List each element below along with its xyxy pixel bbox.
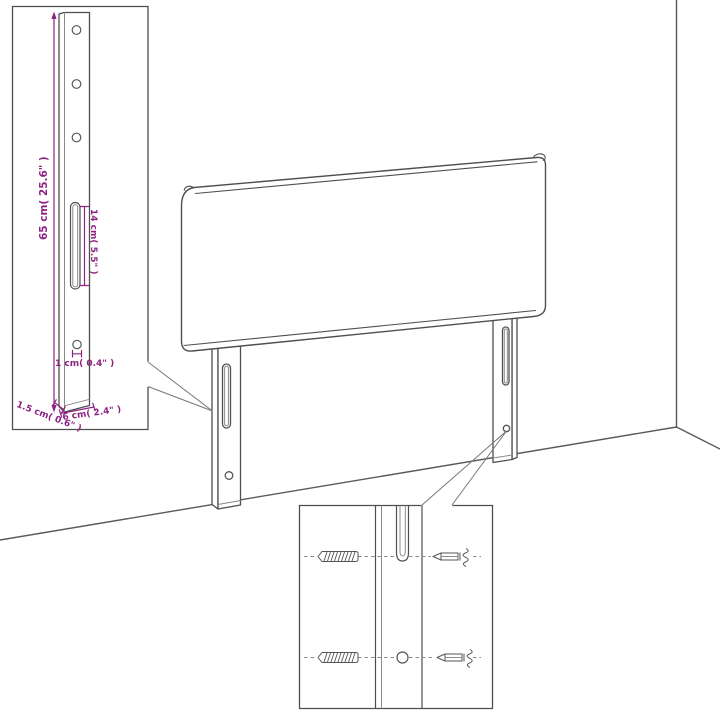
- right-leg-slot: [503, 327, 510, 385]
- left-leg-screw-hole: [225, 472, 233, 480]
- right-leg: [493, 300, 517, 463]
- right-leg-screw-hole: [503, 425, 509, 431]
- post-slot: [71, 203, 81, 290]
- right-leg-side-face: [512, 300, 517, 460]
- hanger-bolt-top: [318, 552, 358, 562]
- dimension-label-slot-length: 14 cm( 5.5" ): [87, 209, 97, 275]
- dimension-label-height: 65 cm( 25.6" ): [39, 156, 51, 240]
- diagram-canvas: 65 cm( 25.6" ) 14 cm( 5.5" ) 1 cm( 0.4" …: [0, 0, 720, 720]
- left-leg: [212, 331, 241, 509]
- dimension-label-hole-diameter: 1 cm( 0.4" ): [55, 360, 114, 370]
- headboard-outline: [182, 157, 546, 351]
- hanger-bolt-bottom: [318, 653, 358, 663]
- callout-lines-left: [148, 362, 213, 411]
- floor-line-right: [677, 427, 720, 449]
- left-leg-side-face: [212, 334, 218, 509]
- screw-detail-inset: [300, 506, 493, 709]
- left-leg-slot: [223, 364, 231, 428]
- headboard-panel: [182, 154, 546, 351]
